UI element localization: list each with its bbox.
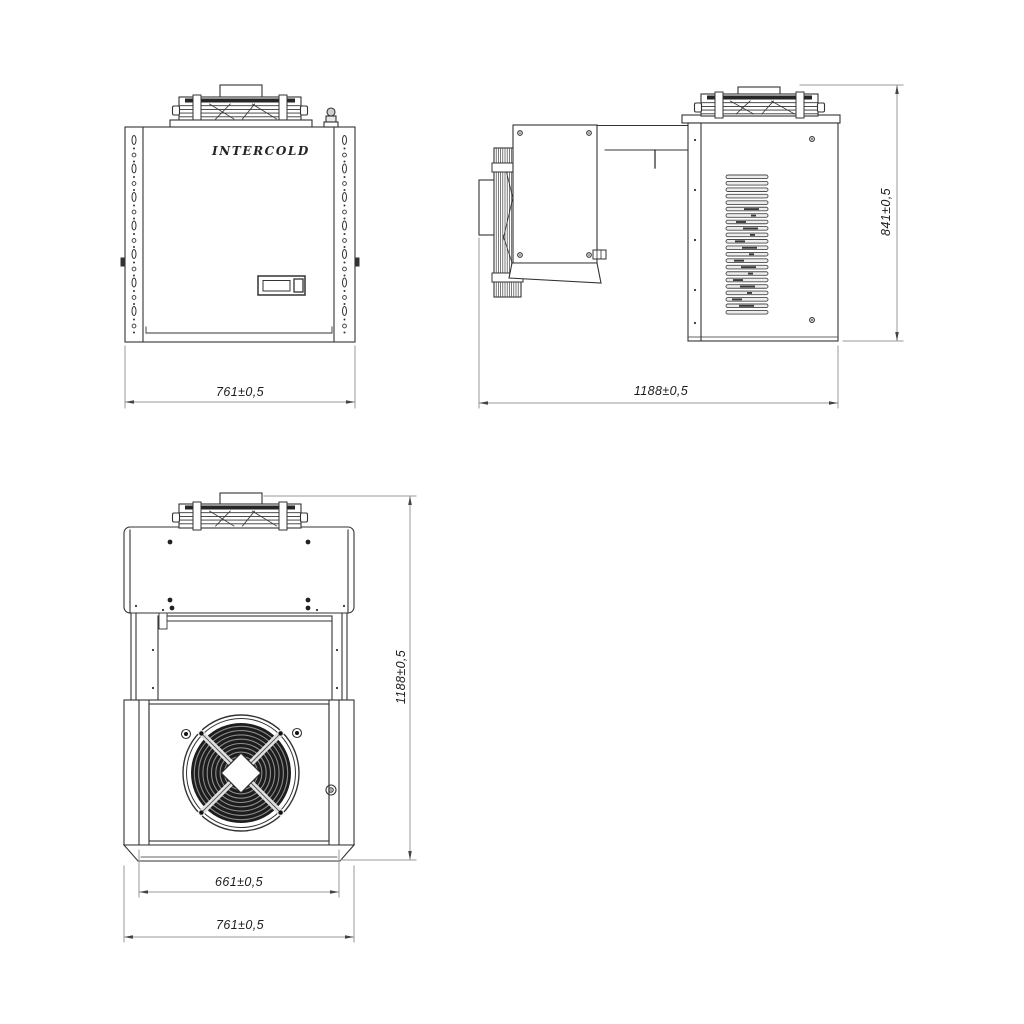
corner-notch [159, 613, 167, 629]
front-view [121, 85, 360, 342]
dim-plan-fan-section: 661±0,5 [215, 875, 263, 889]
evaporator-section-plan [158, 616, 332, 702]
drain-fitting [593, 250, 606, 259]
evaporator-housing [513, 125, 597, 263]
front-body-panel [125, 127, 355, 342]
dim-front-width: 761±0,5 [216, 385, 264, 399]
brand-label: INTERCOLD [212, 144, 310, 158]
side-tab-left [121, 258, 125, 267]
side-tab-right [356, 258, 360, 267]
controller-display [258, 276, 305, 295]
plan-fan-cap [220, 493, 262, 505]
side-view [479, 87, 840, 341]
drip-tray-plan [124, 845, 354, 861]
mounting-arm [597, 126, 689, 169]
dim-plan-length: 1188±0,5 [394, 650, 408, 704]
plan-view [124, 493, 354, 861]
fan-guard [183, 715, 299, 831]
condensing-unit-body [688, 123, 838, 341]
dim-side-height: 841±0,5 [879, 188, 893, 236]
unit-top-panel [124, 527, 354, 613]
monoblock-technical-drawing [0, 0, 1024, 1024]
side-fan-fins [695, 92, 825, 118]
condenser-fan-fins [173, 95, 308, 123]
plan-fan-fins [173, 502, 308, 530]
condenser-fan-cap [220, 85, 262, 98]
dim-plan-width: 761±0,5 [216, 918, 264, 932]
refrigerant-valve [324, 108, 338, 127]
dim-side-length: 1188±0,5 [634, 384, 688, 398]
drawing-canvas: INTERCOLD 761±0,5 1188±0,5 841±0,5 661±0… [0, 0, 1024, 1024]
